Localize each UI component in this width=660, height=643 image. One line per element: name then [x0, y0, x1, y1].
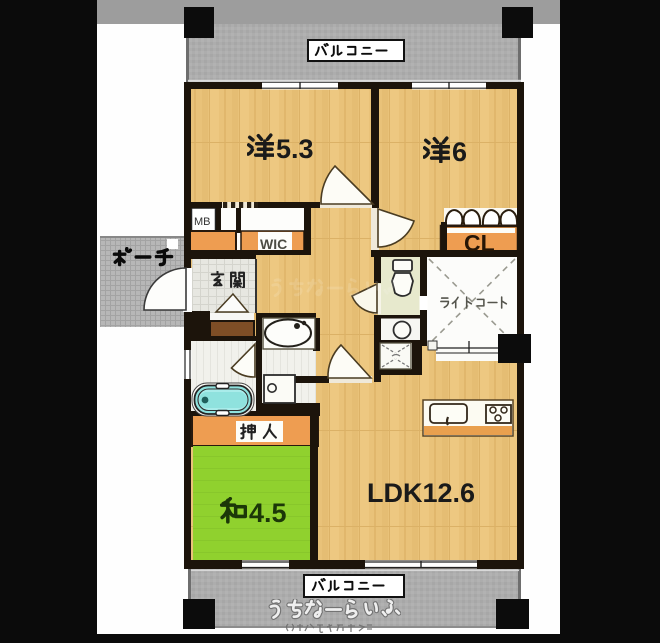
svg-text:WIC: WIC	[260, 236, 287, 252]
svg-text:4.5: 4.5	[249, 498, 287, 528]
svg-text:LDK12.6: LDK12.6	[367, 478, 475, 508]
svg-text:CL: CL	[464, 230, 495, 256]
svg-text:6: 6	[452, 137, 467, 167]
svg-text:MB: MB	[194, 216, 211, 228]
svg-text:5.3: 5.3	[276, 134, 314, 164]
